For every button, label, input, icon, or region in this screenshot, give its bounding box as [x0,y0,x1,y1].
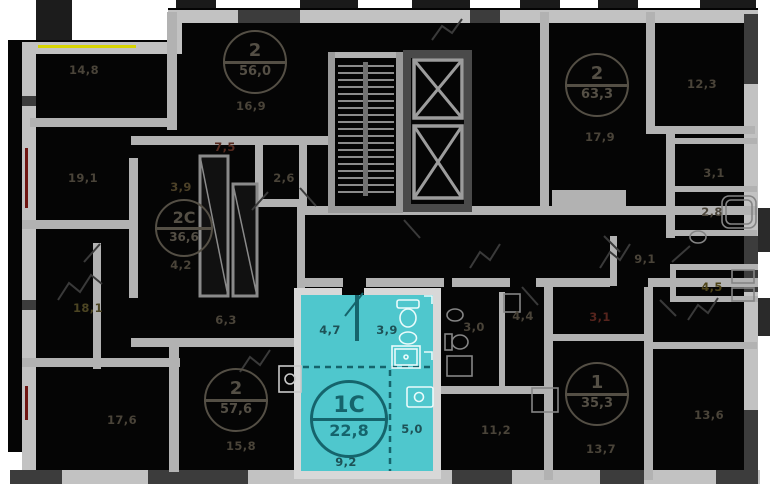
unit-badge-2-63,3[interactable]: 263,3 [565,53,629,117]
selected-apartment-region[interactable] [294,288,441,479]
unit-badge-2-56,0[interactable]: 256,0 [223,30,287,94]
unit-type-label: 2С [157,208,211,227]
unit-area-label: 63,3 [567,87,627,102]
unit-badge-2С-36,6[interactable]: 2С36,6 [155,199,213,257]
unit-area-label: 35,3 [567,396,627,411]
unit-area-label: 57,6 [206,402,266,417]
unit-area-label: 56,0 [225,64,285,79]
unit-type-label: 2 [225,40,285,61]
unit-badge-2-57,6[interactable]: 257,6 [204,368,268,432]
unit-area-label: 36,6 [157,230,211,244]
unit-type-label: 1 [567,372,627,393]
floor-plan-page: 14,816,919,118,117,67,53,94,22,66,315,81… [0,0,770,500]
unit-badge-1-35,3[interactable]: 135,3 [565,362,629,426]
unit-type-label: 2 [206,378,266,399]
unit-type-label: 2 [567,63,627,84]
